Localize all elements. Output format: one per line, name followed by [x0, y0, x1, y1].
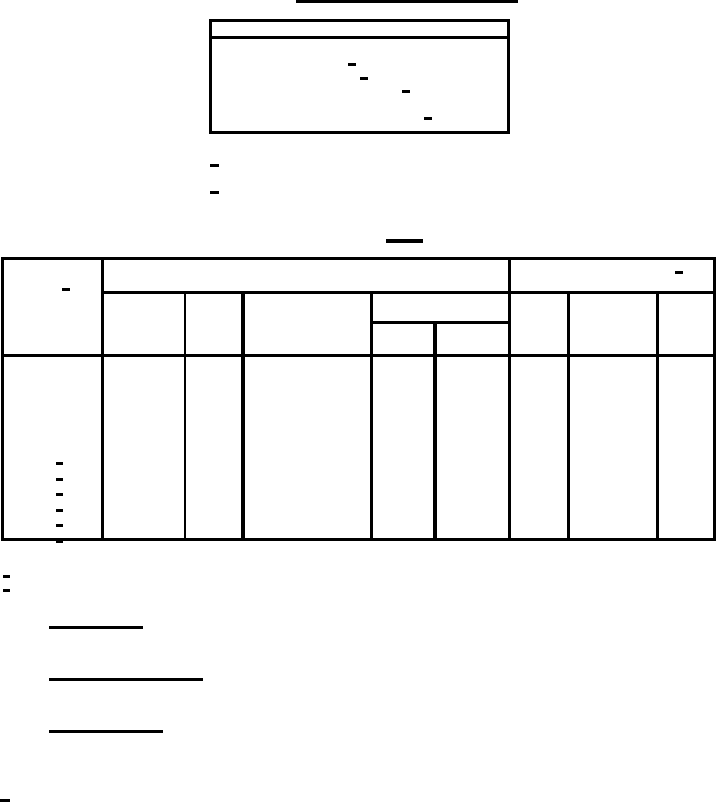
footnote-dash-1 — [3, 575, 10, 578]
table-vline-col4 — [370, 291, 373, 541]
footnote-dash-2 — [3, 589, 10, 592]
top-title-rule — [296, 0, 518, 3]
document-page — [0, 0, 720, 803]
table-vline-col1 — [101, 257, 104, 541]
note-dash-1 — [210, 164, 219, 167]
table-vline-col6 — [567, 291, 570, 541]
table-vline-col2 — [184, 291, 186, 541]
table-vline-col7 — [656, 291, 659, 541]
signature-rule-1 — [49, 626, 143, 629]
table-subheader-line — [370, 321, 510, 324]
header-box — [209, 19, 510, 134]
signature-rule-3 — [49, 730, 163, 733]
note-dash-2 — [210, 191, 219, 194]
data-table-border — [1, 257, 716, 541]
signature-rule-2 — [49, 678, 203, 681]
scan-marks-layer — [0, 0, 720, 803]
page-bottom-dash — [0, 799, 10, 802]
table-header-mid-line — [101, 291, 716, 294]
section-rule — [386, 239, 423, 243]
table-vline-col5 — [508, 257, 511, 541]
table-vline-subcol — [433, 321, 437, 541]
table-vline-col3 — [241, 291, 245, 541]
table-header-bottom-line — [1, 354, 716, 357]
